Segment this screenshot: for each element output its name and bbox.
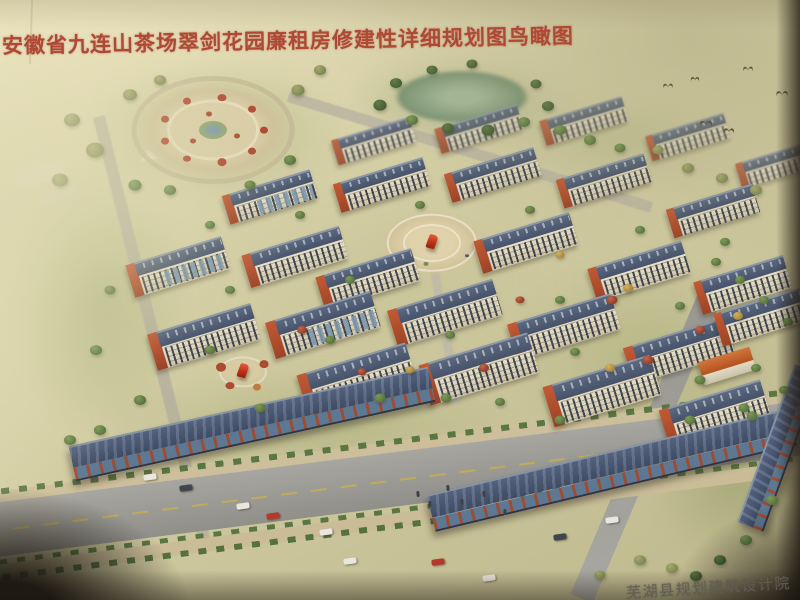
tree	[720, 238, 730, 246]
bird-icon	[724, 126, 735, 132]
tree	[64, 435, 76, 445]
tree	[615, 143, 626, 152]
tree	[292, 85, 305, 96]
plaza-pavilion	[217, 94, 226, 102]
tree	[427, 65, 438, 74]
plaza-pavilion	[248, 148, 256, 155]
tree	[374, 100, 387, 111]
tree	[406, 115, 418, 125]
tree	[314, 65, 326, 75]
bird-icon	[663, 82, 673, 87]
pedestrian	[446, 485, 450, 491]
tree	[86, 143, 104, 158]
plaza-pavilion	[183, 155, 191, 162]
plaza-pavilion	[216, 363, 226, 372]
car	[343, 557, 357, 565]
pedestrian	[460, 499, 464, 505]
tree	[467, 59, 478, 68]
car	[553, 533, 567, 541]
tree	[634, 555, 646, 565]
bird-icon	[776, 89, 788, 95]
plaza-center	[199, 121, 227, 139]
plaza-pavilion	[248, 105, 256, 112]
tree	[90, 345, 102, 355]
pedestrian	[503, 509, 507, 515]
tree	[390, 78, 402, 88]
tree	[518, 117, 530, 127]
plaza-pavilion	[260, 127, 268, 134]
tree	[134, 395, 146, 405]
car	[431, 558, 445, 566]
tree	[105, 285, 116, 294]
photo: 安徽省九连山茶场翠剑花园廉租房修建性详细规划图鸟瞰图 芜湖县规划建筑设计院	[0, 0, 800, 600]
tree	[64, 113, 80, 126]
tree	[740, 535, 752, 545]
tree	[554, 125, 566, 135]
tree	[164, 185, 176, 195]
tree	[375, 393, 386, 402]
tree	[52, 173, 68, 186]
tree	[205, 345, 216, 354]
tree	[284, 155, 296, 165]
plaza-pavilion	[253, 384, 261, 391]
tree	[245, 180, 256, 189]
tree	[750, 185, 762, 195]
tree	[542, 101, 554, 111]
tree	[482, 125, 495, 136]
pedestrian	[482, 491, 486, 497]
tree	[129, 180, 142, 191]
tree	[739, 403, 750, 412]
tree	[154, 75, 166, 85]
tree	[531, 79, 542, 88]
tree	[682, 163, 694, 173]
tree	[255, 403, 266, 412]
plaza-pavilion	[161, 138, 169, 145]
plaza-pavilion	[260, 361, 269, 369]
plaza-pavilion	[183, 98, 191, 105]
plaza-pavilion	[217, 159, 226, 167]
tree	[747, 411, 758, 420]
tree	[695, 375, 706, 384]
plaza-pavilion	[226, 382, 235, 390]
tree	[685, 415, 696, 424]
tree	[666, 563, 678, 573]
tree	[766, 495, 778, 505]
tree	[714, 555, 726, 565]
tree	[607, 295, 618, 304]
pedestrian	[416, 491, 420, 497]
tree	[595, 570, 606, 579]
plaza-pavilion	[161, 115, 169, 122]
tree	[716, 173, 728, 183]
pedestrian	[428, 501, 432, 507]
bird-icon	[743, 65, 753, 70]
tree	[555, 415, 566, 424]
bird-icon	[700, 119, 713, 126]
tree	[441, 393, 452, 402]
tree	[643, 355, 654, 364]
tree	[584, 135, 596, 145]
car	[482, 574, 496, 582]
bird-icon	[691, 75, 700, 80]
tree	[94, 425, 106, 435]
tree	[653, 145, 664, 154]
tree	[442, 123, 454, 133]
design-institute-credit: 芜湖县规划建筑设计院	[626, 572, 792, 600]
